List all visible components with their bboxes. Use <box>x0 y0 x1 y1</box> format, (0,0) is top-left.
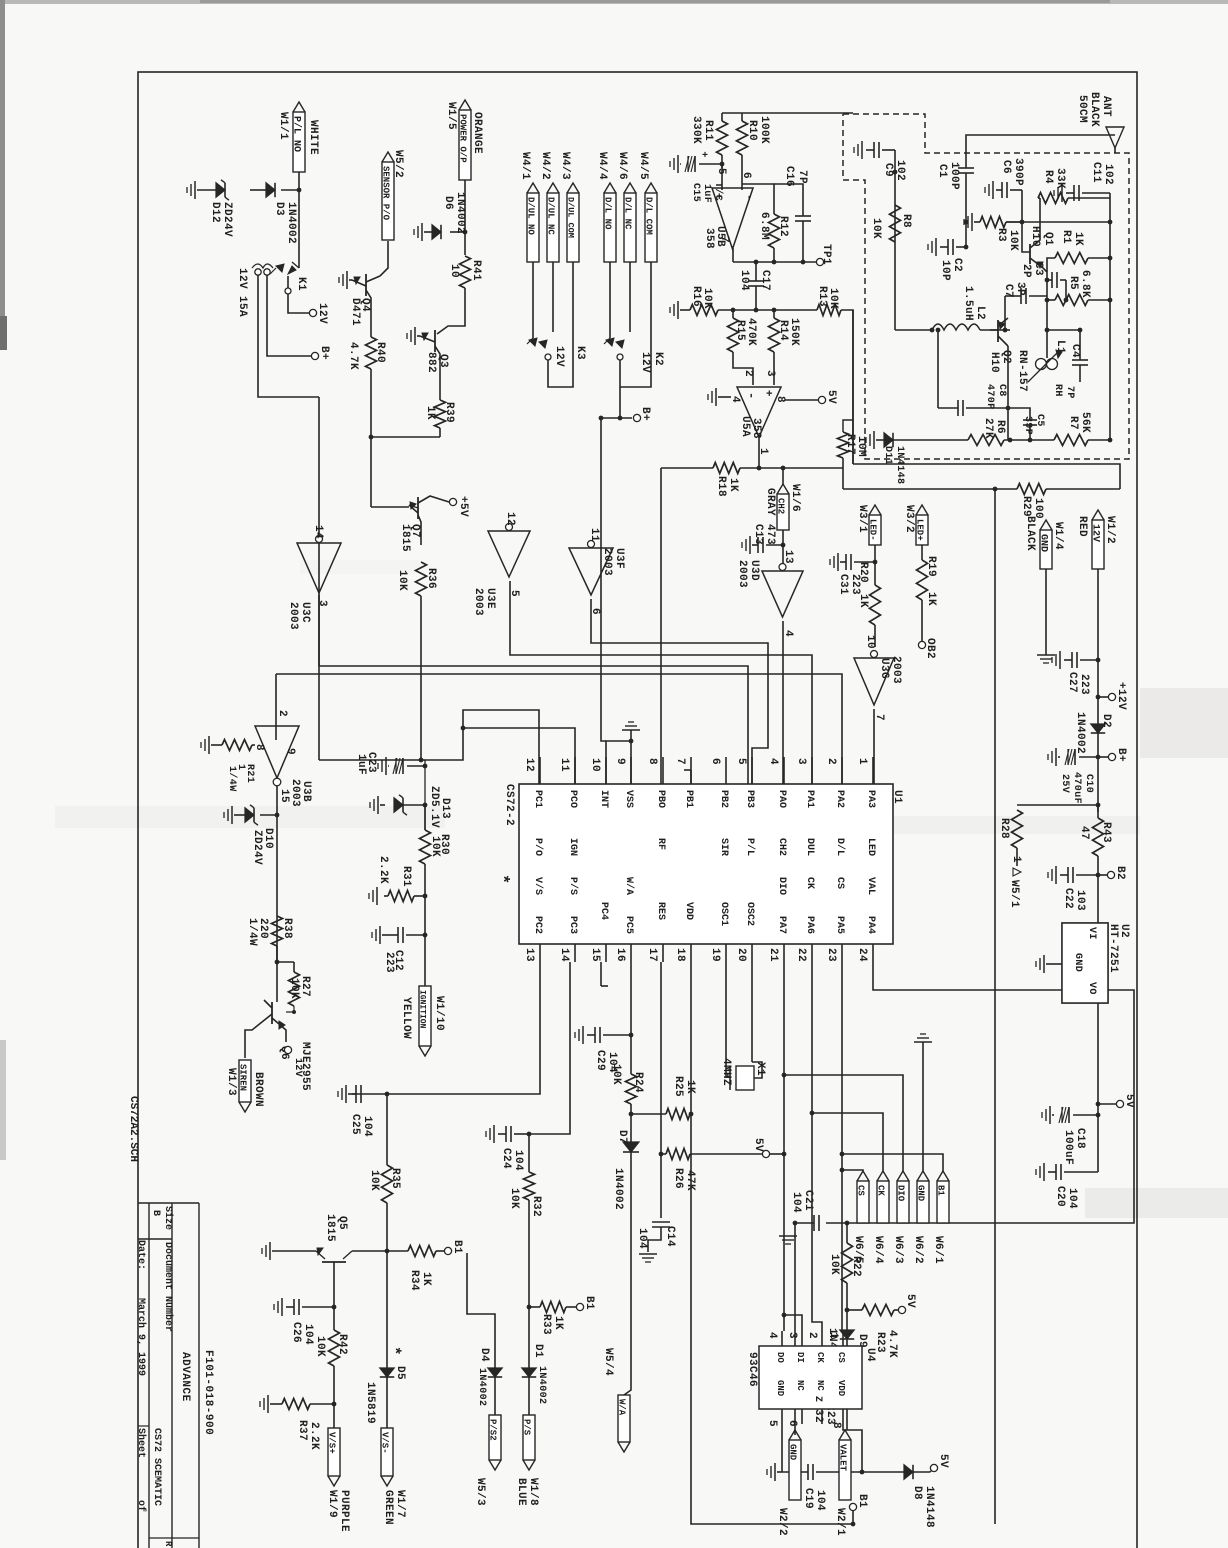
svg-text:1: 1 <box>827 1332 839 1339</box>
svg-text:K3: K3 <box>574 346 586 360</box>
svg-text:W5/2: W5/2 <box>392 150 404 178</box>
svg-text:25V: 25V <box>1059 774 1070 793</box>
svg-text:SIR: SIR <box>718 838 729 856</box>
svg-text:104: 104 <box>790 1192 802 1213</box>
svg-text:R: R <box>163 1541 173 1547</box>
svg-text:1: 1 <box>856 758 868 765</box>
svg-text:W2/2: W2/2 <box>776 1508 788 1536</box>
svg-text:358: 358 <box>750 418 762 439</box>
svg-text:R12: R12 <box>777 216 789 237</box>
svg-text:U3G: U3G <box>878 658 890 679</box>
svg-text:PB2: PB2 <box>718 790 729 808</box>
svg-text:1N4002: 1N4002 <box>1074 712 1086 754</box>
svg-text:1N4002: 1N4002 <box>536 1366 547 1404</box>
svg-text:C2: C2 <box>951 258 963 272</box>
svg-text:R34: R34 <box>408 1270 420 1291</box>
svg-text:U1: U1 <box>891 790 903 804</box>
svg-text:1uF: 1uF <box>355 754 367 775</box>
svg-text:2.2K: 2.2K <box>308 1422 320 1450</box>
svg-text:16: 16 <box>614 948 626 962</box>
svg-text:2003: 2003 <box>289 779 301 807</box>
svg-text:GRAY: GRAY <box>764 488 776 516</box>
svg-text:GND: GND <box>775 1380 785 1397</box>
svg-text:3P: 3P <box>1014 282 1026 296</box>
svg-text:1K: 1K <box>857 594 869 608</box>
svg-text:OSC2: OSC2 <box>744 902 755 926</box>
svg-text:CH2: CH2 <box>776 838 787 856</box>
svg-text:W4/3: W4/3 <box>559 152 571 180</box>
svg-text:W5/4: W5/4 <box>602 1348 614 1376</box>
svg-text:8: 8 <box>830 1422 842 1429</box>
svg-text:2: 2 <box>825 758 837 765</box>
svg-text:R42: R42 <box>336 1334 348 1355</box>
svg-text:23: 23 <box>825 948 837 962</box>
svg-text:6: 6 <box>740 172 752 179</box>
svg-text:7: 7 <box>674 758 686 765</box>
svg-text:VAL: VAL <box>865 877 876 895</box>
svg-text:P/S: P/S <box>567 877 579 895</box>
svg-text:C27: C27 <box>1066 672 1078 693</box>
svg-text:1N4148: 1N4148 <box>894 446 905 484</box>
svg-text:93C46: 93C46 <box>746 1352 758 1387</box>
svg-text:CS72 SCEMATIC: CS72 SCEMATIC <box>151 1428 162 1506</box>
svg-text:PC1: PC1 <box>532 790 543 808</box>
svg-text:BLACK: BLACK <box>1024 516 1036 551</box>
svg-text:150K: 150K <box>788 318 800 346</box>
svg-text:D8: D8 <box>911 1486 923 1500</box>
svg-text:1K: 1K <box>552 1316 564 1330</box>
svg-text:10K: 10K <box>701 288 713 309</box>
svg-text:10K: 10K <box>368 1170 380 1191</box>
svg-text:10: 10 <box>864 635 876 649</box>
svg-text:C19: C19 <box>802 1488 814 1509</box>
svg-text:21: 21 <box>767 948 779 962</box>
svg-text:NC: NC <box>795 1380 805 1391</box>
svg-text:2003: 2003 <box>890 656 902 684</box>
svg-text:47K: 47K <box>684 1170 696 1191</box>
svg-text:2: 2 <box>276 710 288 717</box>
svg-text:C15: C15 <box>690 183 701 202</box>
svg-text:+: + <box>766 389 773 401</box>
svg-text:-: - <box>744 392 758 400</box>
svg-text:R1: R1 <box>1060 230 1072 244</box>
svg-text:10K: 10K <box>288 978 300 999</box>
svg-text:RN-157: RN-157 <box>1016 350 1028 392</box>
svg-text:1N5819: 1N5819 <box>364 1382 376 1424</box>
svg-text:R8: R8 <box>900 214 912 228</box>
svg-text:W1/1: W1/1 <box>277 112 289 140</box>
svg-text:F101-018-900: F101-018-900 <box>202 1350 214 1435</box>
svg-text:3: 3 <box>786 1332 798 1339</box>
svg-text:W/A: W/A <box>623 877 635 895</box>
svg-text:11: 11 <box>558 758 570 772</box>
svg-text:-: - <box>742 194 756 202</box>
svg-text:C18: C18 <box>1074 1128 1086 1149</box>
svg-text:March 9, 1999: March 9, 1999 <box>135 1298 147 1376</box>
svg-text:10: 10 <box>448 264 460 278</box>
svg-text:W1/4: W1/4 <box>1052 522 1064 550</box>
svg-text:*: * <box>492 874 511 885</box>
svg-text:R37: R37 <box>296 1420 308 1441</box>
svg-text:5V: 5V <box>752 1138 764 1152</box>
svg-text:IGN: IGN <box>567 838 578 856</box>
svg-text:C10: C10 <box>1083 774 1094 793</box>
svg-text:B: B <box>150 1210 161 1216</box>
svg-text:D1: D1 <box>532 1344 544 1358</box>
svg-text:of: of <box>135 1500 147 1512</box>
svg-text:B+: B+ <box>1115 748 1127 762</box>
svg-text:C7: C7 <box>1002 284 1014 298</box>
svg-text:R28: R28 <box>998 818 1010 839</box>
svg-text:RH: RH <box>1052 384 1063 397</box>
svg-text:CS72A2.SCH: CS72A2.SCH <box>127 1096 139 1162</box>
svg-text:W1/9: W1/9 <box>326 1490 338 1518</box>
svg-text:X1: X1 <box>754 1062 766 1076</box>
svg-text:W4/1: W4/1 <box>519 152 531 180</box>
svg-text:1K: 1K <box>925 592 937 606</box>
svg-text:W5/1: W5/1 <box>1008 880 1020 908</box>
svg-text:VDD: VDD <box>683 902 694 920</box>
svg-text:Q1: Q1 <box>1042 232 1054 246</box>
svg-text:D12: D12 <box>209 202 221 223</box>
svg-text:W1/6: W1/6 <box>789 484 801 512</box>
svg-text:104: 104 <box>361 1116 373 1137</box>
svg-text:VO: VO <box>1086 982 1097 995</box>
svg-text:R18: R18 <box>715 476 727 497</box>
svg-text:5V: 5V <box>825 390 837 404</box>
svg-text:R4: R4 <box>1042 170 1054 184</box>
svg-text:1815: 1815 <box>399 524 411 552</box>
svg-text:C1: C1 <box>936 164 948 178</box>
svg-text:2P: 2P <box>1020 264 1032 278</box>
svg-text:R33: R33 <box>540 1314 552 1335</box>
svg-text:7P: 7P <box>1064 386 1075 399</box>
svg-text:U4: U4 <box>864 1348 876 1362</box>
svg-text:W6/3: W6/3 <box>892 1236 904 1264</box>
svg-text:R10: R10 <box>746 120 758 141</box>
svg-text:223: 223 <box>1078 674 1090 695</box>
svg-text:102: 102 <box>1102 164 1114 185</box>
svg-text:D2: D2 <box>1100 714 1112 728</box>
svg-text:10K: 10K <box>429 836 441 857</box>
svg-text:V/S: V/S <box>532 877 544 895</box>
svg-text:1/4W: 1/4W <box>246 918 258 946</box>
svg-text:3: 3 <box>795 758 807 765</box>
svg-text:12V: 12V <box>316 303 328 324</box>
svg-text:W1/8: W1/8 <box>527 1478 539 1506</box>
svg-text:C8: C8 <box>996 384 1007 397</box>
svg-text:R11: R11 <box>702 120 714 141</box>
svg-text:C26: C26 <box>290 1322 302 1343</box>
svg-text:R3: R3 <box>995 228 1007 242</box>
svg-text:D3: D3 <box>273 202 285 216</box>
svg-text:104: 104 <box>814 1490 826 1511</box>
svg-text:15: 15 <box>589 948 601 962</box>
svg-text:3: 3 <box>316 600 328 607</box>
svg-text:PA6: PA6 <box>804 916 815 934</box>
svg-text:14: 14 <box>312 525 324 539</box>
svg-text:33K: 33K <box>1054 168 1066 189</box>
svg-text:390P: 390P <box>1012 158 1024 186</box>
svg-text:10K: 10K <box>396 570 408 591</box>
svg-text:B1: B1 <box>583 1296 595 1310</box>
svg-text:GREEN: GREEN <box>382 1490 394 1525</box>
svg-text:R41: R41 <box>470 260 482 281</box>
svg-text:ORANGE: ORANGE <box>471 112 483 154</box>
svg-text:6: 6 <box>786 1420 798 1427</box>
svg-text:K2: K2 <box>652 352 664 366</box>
svg-text:Q2: Q2 <box>1000 350 1012 364</box>
svg-text:INT: INT <box>598 790 609 808</box>
svg-text:2003: 2003 <box>472 588 484 616</box>
svg-text:4.7K: 4.7K <box>347 342 359 370</box>
svg-text:W1/10: W1/10 <box>433 996 445 1031</box>
svg-text:Size: Size <box>162 1206 174 1230</box>
svg-text:B1: B1 <box>451 1240 463 1254</box>
svg-text:NC: NC <box>815 1380 825 1391</box>
svg-text:W6/5: W6/5 <box>852 1236 864 1264</box>
svg-text:1K: 1K <box>684 1080 696 1094</box>
svg-text:470K: 470K <box>745 318 757 346</box>
svg-text:10: 10 <box>589 758 601 772</box>
svg-text:12V: 12V <box>292 1058 303 1077</box>
svg-text:882: 882 <box>425 352 437 373</box>
svg-text:DIO: DIO <box>776 877 787 895</box>
svg-text:10P: 10P <box>939 260 951 281</box>
svg-text:DI: DI <box>795 1352 805 1363</box>
svg-text:R40: R40 <box>374 342 386 363</box>
svg-text:20: 20 <box>735 948 747 962</box>
svg-text:8: 8 <box>774 396 786 403</box>
svg-text:D4: D4 <box>478 1348 490 1362</box>
svg-text:ADVANCE: ADVANCE <box>179 1352 191 1402</box>
svg-text:C29: C29 <box>594 1050 606 1071</box>
svg-text:9: 9 <box>284 748 296 755</box>
svg-text:2003: 2003 <box>601 548 613 576</box>
svg-text:47: 47 <box>1078 826 1090 840</box>
svg-text:100P: 100P <box>948 162 960 190</box>
svg-text:50CM: 50CM <box>1076 95 1088 123</box>
svg-text:D5: D5 <box>394 1366 406 1380</box>
svg-text:3: 3 <box>764 370 776 377</box>
svg-text:D/L: D/L <box>834 838 846 856</box>
svg-text:K1: K1 <box>295 277 307 291</box>
svg-text:10K: 10K <box>1007 230 1019 251</box>
svg-text:5V: 5V <box>937 1454 949 1468</box>
svg-text:Document Number: Document Number <box>162 1242 174 1332</box>
svg-text:2003: 2003 <box>287 602 299 630</box>
svg-text:1K: 1K <box>1072 232 1084 246</box>
svg-text:10K: 10K <box>828 1254 840 1275</box>
svg-text:ANT: ANT <box>1100 96 1112 117</box>
svg-text:15: 15 <box>278 789 290 803</box>
svg-text:R15: R15 <box>734 320 746 341</box>
svg-text:VDD: VDD <box>836 1380 846 1397</box>
svg-text:R7: R7 <box>1067 416 1079 430</box>
svg-text:10K: 10K <box>314 1336 326 1357</box>
svg-text:B+: B+ <box>639 407 651 421</box>
svg-text:D7: D7 <box>616 1130 628 1144</box>
svg-text:D6: D6 <box>442 196 454 210</box>
svg-text:D471: D471 <box>349 298 361 326</box>
svg-text:1K: 1K <box>424 406 436 420</box>
svg-text:12: 12 <box>504 512 516 526</box>
svg-text:330K: 330K <box>690 116 702 144</box>
svg-text:C17: C17 <box>759 270 771 291</box>
svg-text:C6: C6 <box>1000 160 1012 174</box>
svg-text:W1/2: W1/2 <box>1104 516 1116 544</box>
svg-text:104: 104 <box>738 270 750 291</box>
svg-text:C4: C4 <box>1069 344 1081 358</box>
svg-text:ZD5.1V: ZD5.1V <box>428 786 440 828</box>
svg-text:PA3: PA3 <box>865 790 876 808</box>
svg-text:GND: GND <box>1038 534 1049 552</box>
svg-text:PCO: PCO <box>567 790 578 808</box>
svg-text:H10: H10 <box>1029 226 1041 247</box>
svg-text:W3/1: W3/1 <box>856 505 868 533</box>
svg-text:U3E: U3E <box>484 588 496 609</box>
svg-text:Q3: Q3 <box>437 354 449 368</box>
svg-text:RES: RES <box>655 902 666 920</box>
svg-text:470uF: 470uF <box>1071 772 1082 804</box>
svg-text:5: 5 <box>766 1420 778 1427</box>
svg-text:27K: 27K <box>982 418 994 439</box>
svg-text:PA7: PA7 <box>776 916 787 934</box>
svg-text:5: 5 <box>735 758 747 765</box>
svg-text:C9: C9 <box>882 163 894 177</box>
svg-text:10K: 10K <box>870 218 882 239</box>
svg-text:223: 223 <box>383 952 395 973</box>
svg-text:R43: R43 <box>1100 822 1112 843</box>
svg-text:LED: LED <box>865 838 876 856</box>
svg-text:BLACK: BLACK <box>1088 92 1100 127</box>
svg-text:P/L NO: P/L NO <box>291 116 303 152</box>
svg-text:OSC1: OSC1 <box>718 902 729 926</box>
svg-text:C20: C20 <box>1054 1186 1066 1207</box>
svg-text:18: 18 <box>674 948 686 962</box>
svg-text:R5: R5 <box>1067 276 1079 290</box>
svg-text:W1/3: W1/3 <box>225 1068 237 1096</box>
svg-text:C24: C24 <box>500 1148 512 1169</box>
svg-text:R32: R32 <box>530 1196 542 1217</box>
svg-text:W4/4: W4/4 <box>596 152 608 180</box>
svg-text:P/L: P/L <box>744 838 756 856</box>
svg-text:BLUE: BLUE <box>515 1478 527 1506</box>
svg-text:R26: R26 <box>672 1168 684 1189</box>
svg-text:CS: CS <box>834 877 845 889</box>
svg-text:11: 11 <box>588 528 600 542</box>
svg-text:CS72-2: CS72-2 <box>503 784 515 826</box>
svg-text:1N4002: 1N4002 <box>476 1368 487 1406</box>
svg-text:PA4: PA4 <box>865 916 876 934</box>
svg-text:L2: L2 <box>974 306 986 320</box>
svg-text:W6/4: W6/4 <box>872 1236 884 1264</box>
svg-text:358: 358 <box>703 228 715 249</box>
svg-text:B2: B2 <box>1114 866 1126 880</box>
svg-text:*: * <box>385 1346 403 1356</box>
svg-text:U5A: U5A <box>739 416 751 437</box>
svg-text:WHITE: WHITE <box>307 120 319 155</box>
svg-text:Q5: Q5 <box>336 1216 348 1230</box>
svg-text:2: 2 <box>742 370 754 377</box>
svg-text:22: 22 <box>795 948 807 962</box>
svg-text:1/4W: 1/4W <box>226 766 238 792</box>
svg-text:PA5: PA5 <box>834 916 845 934</box>
svg-text:2: 2 <box>806 1332 818 1339</box>
svg-text:C22: C22 <box>1062 888 1074 909</box>
svg-text:470P: 470P <box>984 384 995 410</box>
svg-text:1: 1 <box>1010 856 1022 863</box>
svg-text:C25: C25 <box>349 1114 361 1135</box>
svg-text:R36: R36 <box>425 568 437 589</box>
svg-text:C14: C14 <box>664 1226 676 1247</box>
svg-text:104: 104 <box>512 1150 524 1171</box>
svg-text:1.5uH: 1.5uH <box>962 286 974 321</box>
svg-text:104: 104 <box>302 1324 314 1345</box>
svg-text:4: 4 <box>766 1332 778 1339</box>
svg-text:CK: CK <box>804 877 815 889</box>
svg-text:100uF: 100uF <box>1062 1130 1074 1165</box>
svg-text:U3C: U3C <box>299 602 311 623</box>
svg-text:C31: C31 <box>837 574 849 595</box>
svg-text:PB1: PB1 <box>683 790 694 808</box>
svg-text:W6/1: W6/1 <box>932 1236 944 1264</box>
svg-text:ZD24V: ZD24V <box>251 830 263 865</box>
svg-text:C3: C3 <box>1032 262 1044 276</box>
svg-text:PAO: PAO <box>776 790 787 808</box>
svg-text:1N4002: 1N4002 <box>285 202 297 244</box>
svg-text:1uF: 1uF <box>701 184 712 203</box>
svg-text:4.7K: 4.7K <box>886 1330 898 1358</box>
svg-text:R20: R20 <box>857 562 869 583</box>
svg-text:10K: 10K <box>508 1188 520 1209</box>
svg-text:PC2: PC2 <box>532 916 543 934</box>
svg-text:Sheet: Sheet <box>135 1428 147 1458</box>
svg-text:13: 13 <box>523 948 535 962</box>
svg-text:HT-7251: HT-7251 <box>1107 924 1119 973</box>
svg-text:+: + <box>702 151 708 162</box>
svg-text:12: 12 <box>523 758 535 772</box>
svg-text:1N4148: 1N4148 <box>923 1486 935 1528</box>
svg-text:4: 4 <box>767 758 779 765</box>
svg-text:R24: R24 <box>632 1072 644 1093</box>
svg-text:GND: GND <box>1072 953 1083 972</box>
svg-text:PC4: PC4 <box>598 902 609 920</box>
svg-text:BROWN: BROWN <box>252 1072 264 1107</box>
svg-text:W6/2: W6/2 <box>912 1236 924 1264</box>
svg-text:100K: 100K <box>758 116 770 144</box>
svg-text:17: 17 <box>646 948 658 962</box>
svg-text:PB3: PB3 <box>744 790 755 808</box>
svg-text:Date:: Date: <box>135 1240 146 1270</box>
svg-text:R29: R29 <box>1020 496 1032 517</box>
svg-text:PBO: PBO <box>655 790 666 808</box>
svg-text:+: + <box>716 192 723 204</box>
svg-text:R19: R19 <box>925 556 937 577</box>
svg-text:10K: 10K <box>827 288 839 309</box>
svg-text:+5V: +5V <box>457 496 469 517</box>
svg-text:R25: R25 <box>672 1076 684 1097</box>
svg-text:H10: H10 <box>988 352 1000 373</box>
svg-text:6.8M: 6.8M <box>758 212 770 240</box>
svg-text:10K: 10K <box>610 1064 622 1085</box>
svg-text:RF: RF <box>655 838 666 850</box>
svg-text:1K: 1K <box>420 1272 432 1286</box>
svg-text:PA2: PA2 <box>834 790 845 808</box>
svg-text:W4/2: W4/2 <box>539 152 551 180</box>
svg-text:104: 104 <box>636 1228 648 1249</box>
svg-text:ZD24V: ZD24V <box>221 202 233 237</box>
